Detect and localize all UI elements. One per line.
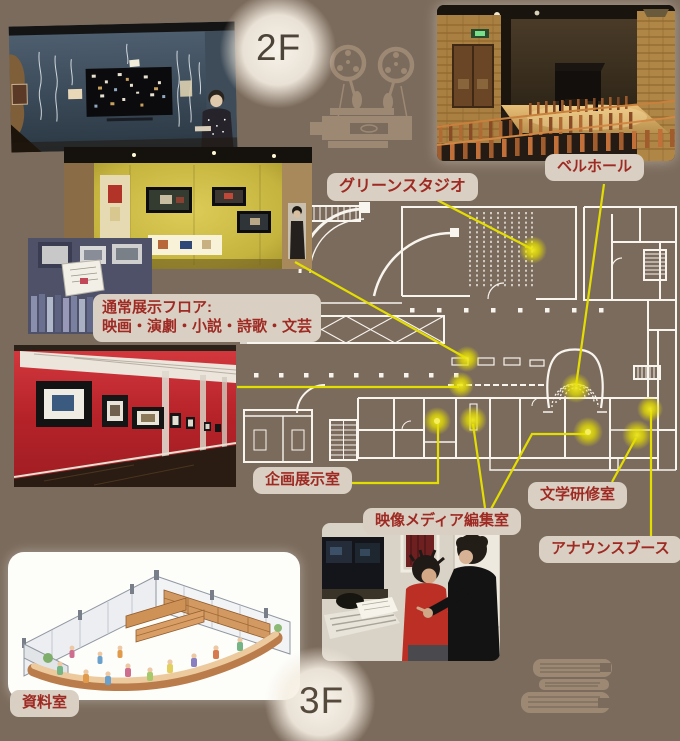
location-glow-dots <box>423 236 663 450</box>
regular-exhibition-title: 通常展示フロア: <box>102 299 312 318</box>
label-planned-exhibition-room: 企画展示室 <box>253 467 352 494</box>
label-announce-booth: アナウンスブース <box>539 536 680 563</box>
floor-guide-page: グリーンスタジオ ベルホール 通常展示フロア: 映画・演劇・小説・詩歌・文芸 企… <box>0 0 680 741</box>
plan-entry-arcs <box>300 203 458 296</box>
connector-bell-hall <box>576 184 604 386</box>
connector-literature-room <box>612 438 636 482</box>
monitors <box>322 537 388 599</box>
label-regular-exhibition-floor: 通常展示フロア: 映画・演劇・小説・詩歌・文芸 <box>93 294 321 342</box>
plan-display-cases <box>448 358 545 385</box>
plan-bottom-rooms <box>358 398 676 470</box>
book-stack-icon <box>521 659 612 713</box>
label-green-studio: グリーンスタジオ <box>327 173 478 201</box>
photo-editing-room <box>322 523 500 661</box>
regular-exhibition-genres: 映画・演劇・小説・詩歌・文芸 <box>102 318 312 337</box>
exhibit-board <box>86 67 173 122</box>
plan-green-studio <box>402 207 576 299</box>
photo-planned-exhibition-gallery <box>14 345 236 487</box>
connector-video-editing-a <box>473 424 485 508</box>
floor-2f-label: 2F <box>256 27 301 69</box>
standing-person-photo <box>288 203 306 259</box>
label-reference-room: 資料室 <box>10 690 79 717</box>
label-video-media-editing-room: 映像メディア編集室 <box>363 508 521 535</box>
label-bell-hall: ベルホール <box>545 154 644 181</box>
plan-right-wing <box>584 207 676 470</box>
floor-3f-label: 3F <box>299 680 344 722</box>
label-literature-seminar-room: 文学研修室 <box>528 482 627 509</box>
green-studio-seats <box>470 212 532 287</box>
connector-green-studio <box>437 200 532 249</box>
illustration-reference-room <box>8 552 300 700</box>
plan-bottom-left <box>244 385 357 462</box>
photo-bell-hall <box>437 5 675 161</box>
plan-bell-hall <box>543 350 607 413</box>
connector-planned-exhibition <box>350 424 438 483</box>
brick-pillar-right <box>637 9 675 161</box>
photo-permanent-exhibition-a <box>9 21 238 152</box>
